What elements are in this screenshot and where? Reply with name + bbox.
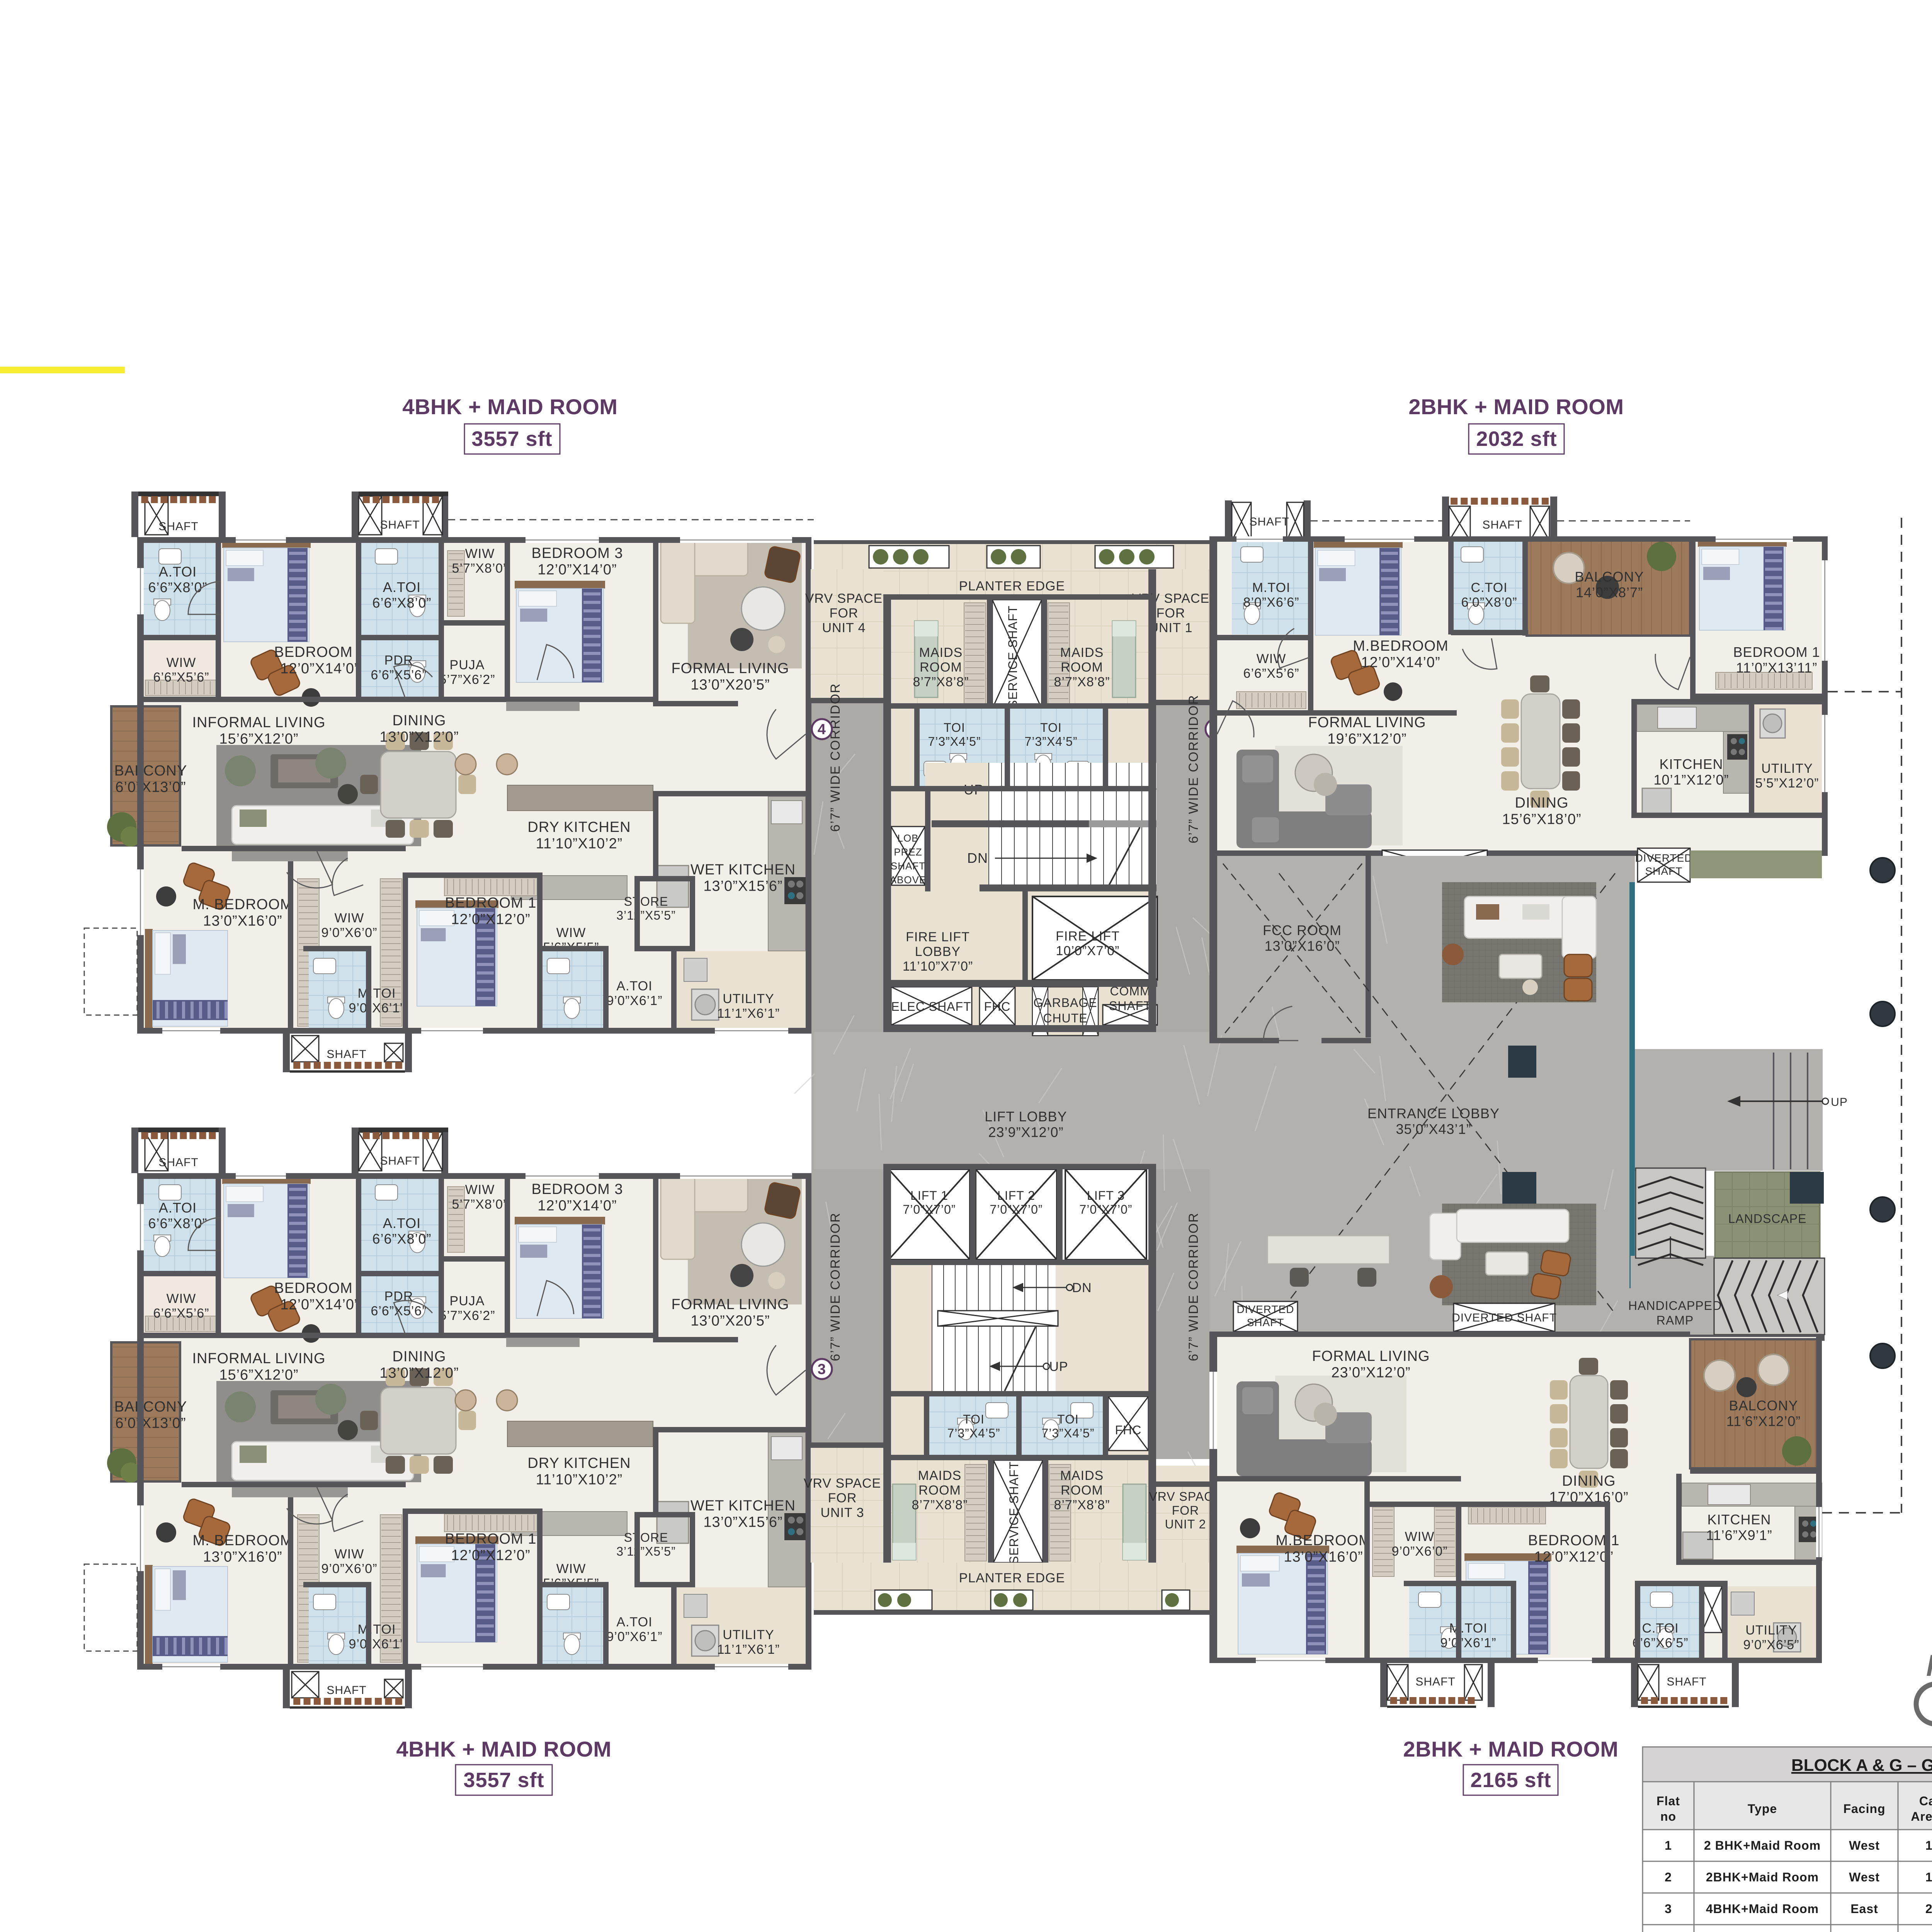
svg-text:6’7” WIDE CORRIDOR: 6’7” WIDE CORRIDOR <box>1186 1212 1201 1361</box>
svg-text:East: East <box>1850 1902 1878 1916</box>
svg-text:MAIDS: MAIDS <box>1060 645 1104 660</box>
svg-text:6’7” WIDE CORRIDOR: 6’7” WIDE CORRIDOR <box>828 683 843 832</box>
svg-text:13’0”X12’0”: 13’0”X12’0” <box>379 1365 459 1381</box>
svg-text:SHAFT: SHAFT <box>327 1048 366 1061</box>
svg-text:WIW: WIW <box>1257 651 1286 666</box>
svg-text:SERVICE SHAFT: SERVICE SHAFT <box>1006 605 1020 709</box>
svg-text:ELEC SHAFT: ELEC SHAFT <box>891 1000 971 1014</box>
svg-text:8’7”X8’8”: 8’7”X8’8” <box>913 675 969 689</box>
svg-text:INFORMAL LIVING: INFORMAL LIVING <box>192 1350 325 1367</box>
svg-text:A.TOI: A.TOI <box>159 1200 197 1216</box>
svg-text:BALCONY: BALCONY <box>1729 1398 1798 1413</box>
svg-text:PLANTER EDGE: PLANTER EDGE <box>959 579 1065 594</box>
svg-text:BEDROOM 2: BEDROOM 2 <box>274 1280 366 1296</box>
svg-text:M. BEDROOM: M. BEDROOM <box>192 896 293 913</box>
svg-text:7’0”X7’0”: 7’0”X7’0” <box>990 1202 1043 1216</box>
svg-text:7’3”X4’5”: 7’3”X4’5” <box>947 1426 1000 1440</box>
svg-text:BALCONY: BALCONY <box>114 763 187 779</box>
svg-text:BALCONY: BALCONY <box>1575 569 1644 585</box>
svg-text:13’0”X16’0”: 13’0”X16’0” <box>203 1549 282 1565</box>
svg-text:Carpet: Carpet <box>1919 1794 1932 1808</box>
svg-text:6’6”X6’5”: 6’6”X6’5” <box>1632 1636 1688 1650</box>
svg-text:6’6”X8’0”: 6’6”X8’0” <box>148 579 207 595</box>
svg-text:CHUTE: CHUTE <box>1043 1011 1087 1025</box>
svg-text:Flat: Flat <box>1656 1794 1680 1808</box>
svg-text:WIW: WIW <box>335 911 364 925</box>
svg-text:BEDROOM 3: BEDROOM 3 <box>531 545 623 561</box>
svg-text:LANDSCAPE: LANDSCAPE <box>1728 1212 1807 1226</box>
svg-text:13’0”X15’6”: 13’0”X15’6” <box>703 878 782 895</box>
svg-text:11’10”X10’2”: 11’10”X10’2” <box>536 836 623 852</box>
svg-text:9’0”X6’1”: 9’0”X6’1” <box>1440 1636 1496 1650</box>
svg-text:SHAFT: SHAFT <box>1109 999 1151 1013</box>
svg-text:DINING: DINING <box>393 713 446 729</box>
svg-text:6’7” WIDE CORRIDOR: 6’7” WIDE CORRIDOR <box>828 1212 843 1361</box>
svg-text:no: no <box>1660 1810 1676 1823</box>
svg-text:6’6”X8’0”: 6’6”X8’0” <box>372 1231 431 1247</box>
svg-text:TOI: TOI <box>944 721 965 735</box>
svg-text:FORMAL LIVING: FORMAL LIVING <box>1312 1348 1430 1364</box>
svg-text:12’0”X14’0”: 12’0”X14’0” <box>537 1198 617 1214</box>
svg-text:A.TOI: A.TOI <box>616 1615 652 1629</box>
svg-text:LOB: LOB <box>897 832 918 844</box>
svg-text:7’3”X4’5”: 7’3”X4’5” <box>928 735 981 748</box>
svg-text:13’0”X12’0”: 13’0”X12’0” <box>379 729 459 745</box>
svg-text:WIW: WIW <box>556 1561 586 1576</box>
svg-text:WET KITCHEN: WET KITCHEN <box>690 862 796 878</box>
svg-text:C.TOI: C.TOI <box>1471 580 1507 595</box>
svg-text:DRY KITCHEN: DRY KITCHEN <box>527 819 631 835</box>
svg-text:15’6”X12’0”: 15’6”X12’0” <box>219 1367 298 1383</box>
svg-text:15’6”X18’0”: 15’6”X18’0” <box>1502 811 1581 828</box>
svg-text:West: West <box>1849 1838 1880 1852</box>
svg-text:6’6”X5’6”: 6’6”X5’6” <box>1243 666 1299 681</box>
svg-text:TOI: TOI <box>963 1412 985 1426</box>
svg-text:UNIT 2: UNIT 2 <box>1165 1517 1206 1531</box>
svg-text:FHC: FHC <box>984 1000 1011 1014</box>
svg-text:FOR: FOR <box>1172 1503 1199 1517</box>
svg-text:8’7”X8’8”: 8’7”X8’8” <box>1054 1498 1110 1512</box>
svg-text:BEDROOM 3: BEDROOM 3 <box>531 1181 623 1197</box>
svg-text:6’6”X5’6”: 6’6”X5’6” <box>153 1306 209 1321</box>
svg-text:DINING: DINING <box>1515 795 1569 811</box>
svg-text:2495: 2495 <box>1925 1902 1932 1916</box>
svg-text:SHAFT: SHAFT <box>1415 1675 1455 1688</box>
svg-text:BEDROOM 1: BEDROOM 1 <box>445 895 536 911</box>
svg-text:BEDROOM 1: BEDROOM 1 <box>1733 644 1820 660</box>
svg-text:SHAFT: SHAFT <box>327 1684 366 1697</box>
svg-text:ROOM: ROOM <box>1061 660 1103 675</box>
svg-text:4BHK + MAID ROOM: 4BHK + MAID ROOM <box>402 395 617 419</box>
svg-text:2 BHK+Maid Room: 2 BHK+Maid Room <box>1704 1838 1821 1852</box>
svg-text:5’7”X6’2”: 5’7”X6’2” <box>439 1308 495 1323</box>
svg-text:TOI: TOI <box>1040 721 1062 735</box>
svg-text:6’6”X5’6”: 6’6”X5’6” <box>153 670 209 685</box>
svg-text:M.TOI: M.TOI <box>358 986 396 1001</box>
svg-text:12’0”X12’0”: 12’0”X12’0” <box>451 1548 530 1564</box>
svg-text:10’1”X12’0”: 10’1”X12’0” <box>1653 772 1729 787</box>
svg-text:7’3”X4’5”: 7’3”X4’5” <box>1041 1426 1094 1440</box>
svg-text:5’7”X8’0”: 5’7”X8’0” <box>452 561 508 576</box>
svg-text:M.TOI: M.TOI <box>1449 1621 1488 1636</box>
svg-text:UNIT 3: UNIT 3 <box>820 1505 864 1520</box>
svg-text:FORMAL LIVING: FORMAL LIVING <box>671 660 789 677</box>
svg-text:12’0”X12’0”: 12’0”X12’0” <box>1534 1549 1613 1565</box>
svg-text:12’0”X14’0”: 12’0”X14’0” <box>280 1297 359 1313</box>
svg-text:FHC: FHC <box>1115 1423 1142 1437</box>
svg-text:11’6”X12’0”: 11’6”X12’0” <box>1726 1413 1801 1429</box>
svg-text:BEDROOM 1: BEDROOM 1 <box>445 1531 536 1547</box>
svg-text:SHAFT: SHAFT <box>158 1156 198 1169</box>
svg-text:11’10”X7’0”: 11’10”X7’0” <box>903 959 973 974</box>
svg-text:LIFT 1: LIFT 1 <box>910 1189 948 1202</box>
svg-text:9’0”X6’0”: 9’0”X6’0” <box>1391 1544 1447 1559</box>
svg-text:2165 sft: 2165 sft <box>1470 1769 1551 1792</box>
svg-text:3’11”X5’5”: 3’11”X5’5” <box>616 1544 675 1558</box>
svg-text:6’6”X8’0”: 6’6”X8’0” <box>148 1215 207 1231</box>
svg-text:23’0”X12’0”: 23’0”X12’0” <box>1331 1365 1410 1381</box>
svg-text:35’0”X43’1”: 35’0”X43’1” <box>1396 1121 1471 1137</box>
svg-text:VRV SPACE: VRV SPACE <box>805 591 883 606</box>
svg-text:WIW: WIW <box>167 655 196 670</box>
svg-text:FCC ROOM: FCC ROOM <box>1263 922 1342 938</box>
svg-text:STORE: STORE <box>624 895 668 908</box>
svg-text:UTILITY: UTILITY <box>723 992 774 1006</box>
svg-text:13’0”X20’5”: 13’0”X20’5” <box>690 677 770 693</box>
svg-text:MAIDS: MAIDS <box>918 1468 962 1483</box>
svg-text:8’0”X6’6”: 8’0”X6’6” <box>1243 595 1299 610</box>
svg-text:West: West <box>1849 1870 1880 1884</box>
svg-text:WIW: WIW <box>335 1547 364 1561</box>
svg-text:UTILITY: UTILITY <box>1761 761 1813 776</box>
svg-text:12’0”X14’0”: 12’0”X14’0” <box>537 562 617 578</box>
svg-text:VRV SPACE: VRV SPACE <box>804 1476 881 1491</box>
svg-text:7’0”X7’0”: 7’0”X7’0” <box>903 1202 956 1216</box>
svg-text:STORE: STORE <box>624 1531 668 1544</box>
svg-text:9’0”X6’1”: 9’0”X6’1” <box>606 993 662 1008</box>
svg-text:BEDROOM 2: BEDROOM 2 <box>274 644 366 660</box>
svg-text:BLOCK A & G – GROUND FLOOR: BLOCK A & G – GROUND FLOOR <box>1791 1756 1932 1775</box>
svg-text:Facing: Facing <box>1843 1802 1885 1816</box>
svg-text:RAMP: RAMP <box>1656 1313 1694 1327</box>
svg-text:ROOM: ROOM <box>918 1483 961 1498</box>
svg-text:KITCHEN: KITCHEN <box>1707 1512 1771 1527</box>
svg-text:1377: 1377 <box>1925 1870 1932 1884</box>
svg-text:WIW: WIW <box>465 1182 495 1197</box>
svg-text:SERVICE SHAFT: SERVICE SHAFT <box>1007 1461 1021 1565</box>
svg-text:UTILITY: UTILITY <box>723 1628 774 1642</box>
svg-text:14’0”X8’7”: 14’0”X8’7” <box>1576 584 1643 600</box>
svg-text:6’0”X13’0”: 6’0”X13’0” <box>115 1415 186 1432</box>
svg-text:9’0”X6’0”: 9’0”X6’0” <box>321 925 377 940</box>
svg-text:13’0”X16’0”: 13’0”X16’0” <box>203 913 282 929</box>
svg-text:FIRE LIFT: FIRE LIFT <box>906 930 970 944</box>
svg-text:C.TOI: C.TOI <box>1642 1621 1679 1636</box>
svg-text:2: 2 <box>1665 1870 1672 1884</box>
svg-text:9’0”X6’0”: 9’0”X6’0” <box>321 1561 377 1576</box>
svg-text:DINING: DINING <box>1562 1473 1616 1489</box>
svg-text:UTILITY: UTILITY <box>1745 1623 1797 1638</box>
svg-text:SHAFT: SHAFT <box>380 519 420 531</box>
svg-text:5’7”X6’2”: 5’7”X6’2” <box>439 672 495 687</box>
svg-text:SHAFT: SHAFT <box>158 520 198 533</box>
svg-text:3: 3 <box>1665 1902 1672 1916</box>
svg-text:DIVERTED: DIVERTED <box>1635 852 1692 864</box>
svg-text:ROOM: ROOM <box>920 660 962 675</box>
svg-text:M. BEDROOM: M. BEDROOM <box>192 1532 293 1549</box>
svg-text:SHAFT: SHAFT <box>891 860 925 872</box>
svg-text:1: 1 <box>1665 1838 1672 1852</box>
svg-text:11’1”X6’1”: 11’1”X6’1” <box>717 1642 780 1657</box>
svg-text:LIFT 2: LIFT 2 <box>997 1189 1035 1202</box>
svg-text:LIFT LOBBY: LIFT LOBBY <box>985 1109 1067 1124</box>
svg-text:FOR: FOR <box>1156 606 1185 621</box>
svg-text:6’7” WIDE CORRIDOR: 6’7” WIDE CORRIDOR <box>1186 694 1201 843</box>
svg-text:6’0”X13’0”: 6’0”X13’0” <box>115 779 186 796</box>
svg-text:1283: 1283 <box>1925 1838 1932 1852</box>
svg-text:13’0”X16’0”: 13’0”X16’0” <box>1284 1549 1363 1565</box>
svg-text:3557 sft: 3557 sft <box>463 1769 544 1792</box>
svg-text:15’6”X12’0”: 15’6”X12’0” <box>219 731 298 747</box>
svg-text:13’0”X16’0”: 13’0”X16’0” <box>1264 938 1340 954</box>
svg-text:DIVERTED: DIVERTED <box>1236 1303 1294 1315</box>
svg-text:4: 4 <box>818 721 826 738</box>
svg-text:11’6”X9’1”: 11’6”X9’1” <box>1706 1527 1772 1543</box>
svg-text:9’0”X6’5”: 9’0”X6’5” <box>1743 1638 1799 1652</box>
svg-text:INFORMAL LIVING: INFORMAL LIVING <box>192 714 325 731</box>
svg-text:M.BEDROOM: M.BEDROOM <box>1276 1532 1371 1549</box>
svg-text:FORMAL LIVING: FORMAL LIVING <box>671 1296 789 1313</box>
svg-text:6’6”X8’0”: 6’6”X8’0” <box>372 595 431 611</box>
svg-text:DN: DN <box>1072 1281 1092 1295</box>
svg-text:23’9”X12’0”: 23’9”X12’0” <box>988 1124 1063 1140</box>
svg-text:12’0”X12’0”: 12’0”X12’0” <box>451 912 530 928</box>
svg-text:A.TOI: A.TOI <box>383 1215 421 1231</box>
svg-text:TOI: TOI <box>1057 1412 1079 1426</box>
svg-text:3: 3 <box>818 1361 826 1378</box>
svg-text:MAIDS: MAIDS <box>1060 1468 1104 1483</box>
svg-text:DIVERTED SHAFT: DIVERTED SHAFT <box>1452 1311 1557 1324</box>
svg-text:9’0”X6’1”: 9’0”X6’1” <box>349 1001 405 1015</box>
svg-text:A.TOI: A.TOI <box>159 564 197 580</box>
svg-text:FIRE LIFT: FIRE LIFT <box>1056 929 1120 944</box>
svg-text:A.TOI: A.TOI <box>616 979 652 993</box>
svg-text:13’0”X15’6”: 13’0”X15’6” <box>703 1514 782 1531</box>
svg-text:12’0”X14’0”: 12’0”X14’0” <box>280 661 359 677</box>
svg-text:11’1”X6’1”: 11’1”X6’1” <box>717 1006 780 1021</box>
svg-text:LOBBY: LOBBY <box>915 944 961 959</box>
svg-text:UP: UP <box>1049 1359 1068 1374</box>
svg-text:SHAFT: SHAFT <box>1249 515 1289 528</box>
svg-text:LIFT 3: LIFT 3 <box>1087 1189 1125 1202</box>
svg-text:2BHK + MAID ROOM: 2BHK + MAID ROOM <box>1408 395 1624 419</box>
svg-text:2BHK+Maid Room: 2BHK+Maid Room <box>1706 1870 1819 1884</box>
svg-text:8’7”X8’8”: 8’7”X8’8” <box>912 1498 968 1512</box>
svg-text:7’3”X4’5”: 7’3”X4’5” <box>1024 735 1077 748</box>
svg-text:WET KITCHEN: WET KITCHEN <box>690 1498 796 1514</box>
svg-text:A.TOI: A.TOI <box>383 579 421 595</box>
svg-text:19’6”X12’0”: 19’6”X12’0” <box>1327 731 1406 747</box>
svg-text:WIW: WIW <box>465 546 495 561</box>
svg-text:UNIT 4: UNIT 4 <box>822 621 866 635</box>
svg-text:ABOVE: ABOVE <box>890 874 927 886</box>
svg-text:SHAFT: SHAFT <box>1482 519 1522 531</box>
svg-text:4BHK + MAID ROOM: 4BHK + MAID ROOM <box>396 1737 611 1761</box>
svg-text:MAIDS: MAIDS <box>919 645 963 660</box>
svg-text:PLANTER EDGE: PLANTER EDGE <box>959 1571 1065 1585</box>
svg-text:Type: Type <box>1748 1802 1777 1816</box>
svg-text:PUJA: PUJA <box>450 658 485 672</box>
svg-text:ROOM: ROOM <box>1061 1483 1103 1498</box>
svg-text:2032 sft: 2032 sft <box>1476 427 1557 451</box>
svg-text:FOR: FOR <box>828 1491 857 1505</box>
svg-text:5’7”X8’0”: 5’7”X8’0” <box>452 1197 508 1212</box>
svg-text:HANDICAPPED: HANDICAPPED <box>1628 1299 1722 1313</box>
svg-text:9’0”X6’1”: 9’0”X6’1” <box>606 1629 662 1644</box>
svg-text:FOR: FOR <box>830 606 859 621</box>
svg-text:M.TOI: M.TOI <box>358 1622 396 1637</box>
svg-text:DN: DN <box>967 850 988 866</box>
svg-text:DRY KITCHEN: DRY KITCHEN <box>527 1455 631 1471</box>
svg-text:Area (sft): Area (sft) <box>1911 1810 1932 1823</box>
svg-text:11’10”X10’2”: 11’10”X10’2” <box>536 1472 623 1488</box>
svg-text:FORMAL LIVING: FORMAL LIVING <box>1308 714 1426 731</box>
svg-text:BALCONY: BALCONY <box>114 1399 187 1415</box>
svg-text:SHAFT: SHAFT <box>380 1155 420 1167</box>
svg-text:GARBAGE: GARBAGE <box>1033 996 1097 1010</box>
svg-text:7’0”X7’0”: 7’0”X7’0” <box>1079 1202 1132 1216</box>
svg-text:6’0”X8’0”: 6’0”X8’0” <box>1461 595 1517 610</box>
svg-text:5’5”X12’0”: 5’5”X12’0” <box>1755 776 1819 791</box>
svg-text:8’7”X8’8”: 8’7”X8’8” <box>1054 675 1110 689</box>
svg-text:SHAFT: SHAFT <box>1247 1316 1284 1328</box>
svg-text:3557 sft: 3557 sft <box>471 427 552 451</box>
svg-text:WIW: WIW <box>1405 1529 1435 1544</box>
svg-text:11’0”X13’11”: 11’0”X13’11” <box>1736 660 1818 675</box>
svg-text:10’0”X7’0”: 10’0”X7’0” <box>1056 944 1120 958</box>
svg-text:PREZ: PREZ <box>894 846 922 858</box>
svg-text:ENTRANCE LOBBY: ENTRANCE LOBBY <box>1367 1105 1500 1121</box>
svg-text:WIW: WIW <box>167 1291 196 1306</box>
svg-text:N: N <box>1926 1648 1932 1682</box>
svg-text:PUJA: PUJA <box>450 1294 485 1308</box>
svg-text:2BHK + MAID ROOM: 2BHK + MAID ROOM <box>1403 1737 1618 1761</box>
svg-text:M.TOI: M.TOI <box>1252 580 1291 595</box>
svg-text:13’0”X20’5”: 13’0”X20’5” <box>690 1313 770 1329</box>
svg-text:DINING: DINING <box>393 1349 446 1365</box>
svg-text:4BHK+Maid Room: 4BHK+Maid Room <box>1706 1902 1819 1916</box>
svg-text:9’0”X6’1”: 9’0”X6’1” <box>349 1637 405 1651</box>
svg-text:KITCHEN: KITCHEN <box>1659 756 1723 772</box>
svg-text:M.BEDROOM: M.BEDROOM <box>1353 638 1449 654</box>
svg-text:WIW: WIW <box>556 925 586 940</box>
svg-text:SHAFT: SHAFT <box>1667 1675 1706 1688</box>
svg-text:SHAFT: SHAFT <box>1645 865 1683 877</box>
svg-text:12’0”X14’0”: 12’0”X14’0” <box>1361 655 1440 671</box>
svg-text:UP: UP <box>1831 1096 1848 1109</box>
svg-text:3’11”X5’5”: 3’11”X5’5” <box>616 908 675 922</box>
